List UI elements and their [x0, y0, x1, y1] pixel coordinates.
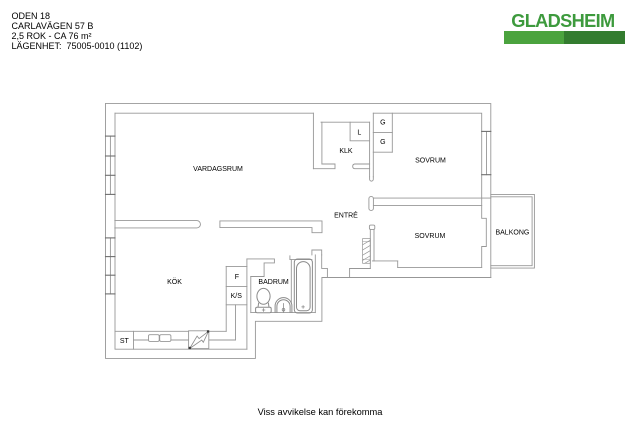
svg-text:SOVRUM: SOVRUM — [415, 158, 446, 165]
svg-text:VARDAGSRUM: VARDAGSRUM — [193, 166, 243, 173]
svg-text:KÖK: KÖK — [167, 278, 182, 286]
svg-text:ENTRÉ: ENTRÉ — [334, 210, 358, 219]
svg-text:K/S: K/S — [231, 293, 243, 300]
svg-text:F: F — [235, 274, 239, 281]
svg-text:KLK: KLK — [339, 148, 353, 155]
svg-text:BADRUM: BADRUM — [258, 279, 289, 286]
svg-text:SOVRUM: SOVRUM — [415, 233, 446, 240]
svg-text:ST: ST — [120, 338, 130, 345]
svg-text:BALKONG: BALKONG — [495, 229, 529, 236]
svg-text:L: L — [357, 130, 361, 137]
svg-text:G: G — [380, 120, 385, 127]
svg-text:G: G — [380, 139, 385, 146]
